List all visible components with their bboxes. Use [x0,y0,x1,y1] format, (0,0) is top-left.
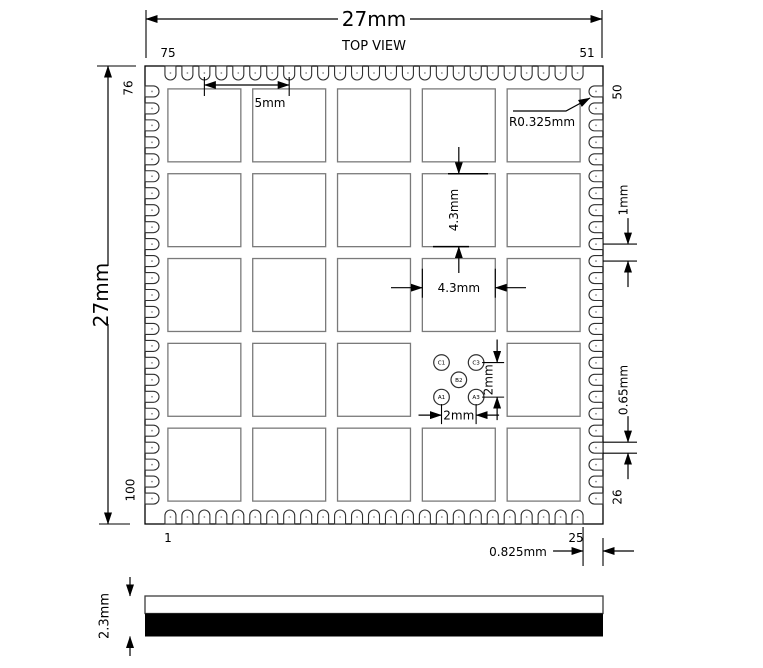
module-outline [145,66,603,524]
fiducial-label-A3: A3 [472,395,480,401]
pad-dot [151,396,153,398]
pad-dot [458,72,460,74]
pad-dot [203,516,205,518]
pad-dot [151,209,153,211]
pad-dot [237,516,239,518]
pad-dot [509,72,511,74]
pad-dot [526,516,528,518]
pad-dot [151,277,153,279]
pad-dot [170,516,172,518]
pad-dot [595,379,597,381]
pad-dot [220,72,222,74]
pad-dot [237,72,239,74]
pad-dot [595,124,597,126]
pad-dot [373,72,375,74]
pad-dot [151,362,153,364]
pad-dot [187,72,189,74]
pad-dot [151,413,153,415]
pin-number-left-bottom: 100 [123,479,137,502]
pad-dot [577,72,579,74]
pad-dot [492,516,494,518]
drawing-canvas: C1C3B2A1A327mmTOP VIEW755127mm7610050261… [0,0,763,668]
dim-corner-offset-label: 0.825mm [489,545,547,559]
pad-dot [595,277,597,279]
pad-dot [595,108,597,110]
dim-overall-width-label: 27mm [342,7,406,31]
pin-number-bottom-right: 25 [568,531,583,545]
pad-dot [203,72,205,74]
dim-fiducial-v-label: 2mm [481,364,495,395]
side-view-bottom-layer [145,614,603,637]
dim-pad-pitch-label: 1mm [616,184,630,215]
side-view: 2.3mm [98,577,603,656]
pad-dot [151,311,153,313]
pad-dot [271,72,273,74]
pad-dot [151,108,153,110]
pad-dot [509,516,511,518]
pad-dot [390,516,392,518]
pad-dot [151,124,153,126]
pin-number-right-bottom: 26 [610,489,624,504]
pad-dot [151,226,153,228]
pad-dot [151,379,153,381]
fiducial-label-C3: C3 [472,361,480,367]
pad-dot [151,260,153,262]
pad-dot [595,345,597,347]
dim-pad-radius-label: R0.325mm [509,115,575,129]
pad-dot [595,192,597,194]
pad-dot [356,516,358,518]
pin-number-right-top: 50 [610,84,624,99]
dim-grid-pitch-label: 5mm [254,96,285,110]
dim-fiducial-h-label: 2mm [443,409,474,423]
pad-dot [220,516,222,518]
pad-dot [595,311,597,313]
pad-dot [151,91,153,93]
pad-dot [595,91,597,93]
pad-dot [458,516,460,518]
pad-dot [187,516,189,518]
pad-dot [595,209,597,211]
pin-number-top-left: 75 [160,46,175,60]
pad-dot [151,345,153,347]
pad-dot [288,516,290,518]
pad-dot [424,516,426,518]
pad-dot [151,464,153,466]
pad-dot [407,516,409,518]
pad-dot [595,243,597,245]
pad-dot [492,72,494,74]
pad-dot [356,72,358,74]
pad-dot [151,141,153,143]
fiducial-label-A1: A1 [438,395,446,401]
pad-dot [151,328,153,330]
pad-dot [254,72,256,74]
pad-dot [595,328,597,330]
pad-dot [151,243,153,245]
pad-dot [475,72,477,74]
dim-square-width-label: 4.3mm [438,281,480,295]
pad-dot [595,447,597,449]
pad-dot [577,516,579,518]
pad-dot [151,294,153,296]
dim-square-height-label: 4.3mm [447,189,461,231]
pad-dot [424,72,426,74]
pin-number-bottom-left: 1 [164,531,172,545]
pad-dot [390,72,392,74]
pad-dot [441,516,443,518]
module-body [145,66,603,524]
pad-dot [407,72,409,74]
pad-dot [595,413,597,415]
pad-dot [595,226,597,228]
fiducial-label-B2: B2 [455,378,462,384]
pad-dot [526,72,528,74]
pad-dot [595,175,597,177]
pad-dot [305,72,307,74]
pad-dot [339,516,341,518]
pad-dot [543,72,545,74]
pad-dot [475,516,477,518]
pad-dot [560,516,562,518]
pad-dot [595,430,597,432]
pad-dot [543,516,545,518]
pad-dot [595,158,597,160]
pad-dot [595,481,597,483]
pad-dot [373,516,375,518]
pad-dot [305,516,307,518]
pad-dot [595,141,597,143]
top-view-title: TOP VIEW [341,39,406,54]
fiducial-label-C1: C1 [438,361,446,367]
pad-dot [322,72,324,74]
pin-number-top-right: 51 [579,46,594,60]
pad-dot [271,516,273,518]
pad-dot [595,294,597,296]
pad-dot [595,464,597,466]
dim-overall-height-label: 27mm [89,263,113,327]
dim-thickness-label: 2.3mm [98,593,113,639]
pad-dot [560,72,562,74]
pad-dot [595,498,597,500]
pad-dot [322,516,324,518]
pad-dot [151,498,153,500]
mechanical-drawing: C1C3B2A1A327mmTOP VIEW755127mm7610050261… [0,0,763,668]
pad-dot [151,430,153,432]
pad-dot [595,260,597,262]
pad-dot [595,362,597,364]
pad-dot [288,72,290,74]
pad-dot [151,192,153,194]
pin-number-left-top: 76 [121,80,135,95]
pad-dot [151,447,153,449]
side-view-top-layer [145,596,603,614]
pad-dot [595,396,597,398]
pad-dot [151,158,153,160]
pad-dot [441,72,443,74]
dim-pad-width-label: 0.65mm [616,365,630,415]
pad-dot [151,175,153,177]
pad-dot [151,481,153,483]
pad-dot [254,516,256,518]
pad-dot [339,72,341,74]
pad-dot [170,72,172,74]
